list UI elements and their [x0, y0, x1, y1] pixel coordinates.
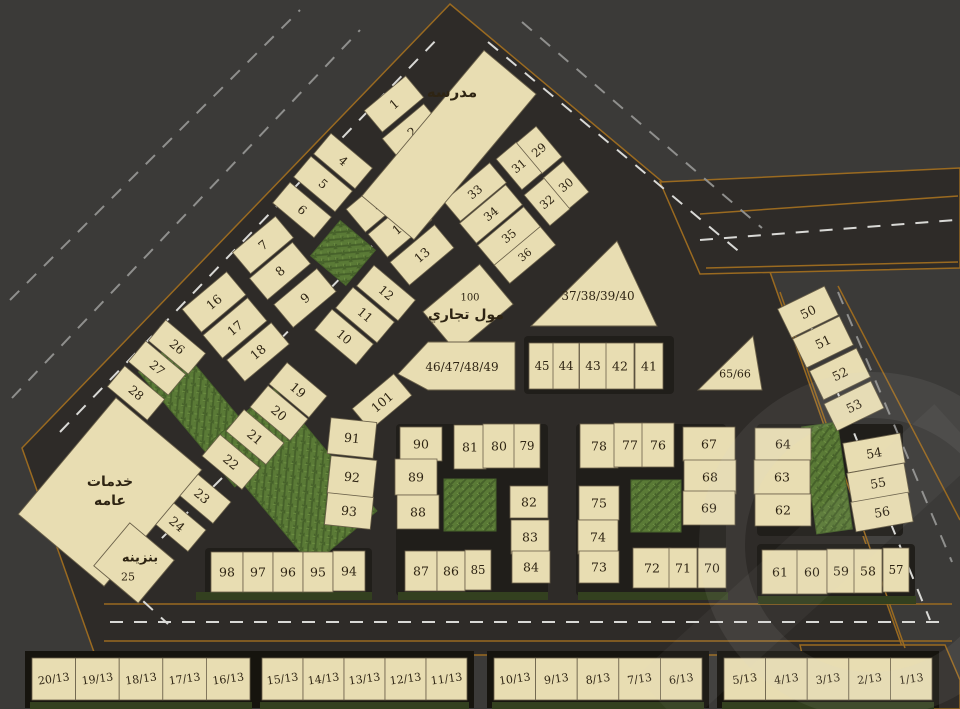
plot-number: 68	[702, 470, 718, 485]
plot-number: 67	[701, 437, 717, 452]
bottom-strip: 15/1314/1313/1312/1311/13	[255, 651, 474, 709]
plot-81[interactable]: 81	[454, 425, 486, 469]
plot-number: 86	[443, 564, 459, 579]
road-surface	[660, 168, 960, 274]
plot-number: 75	[591, 496, 607, 511]
plot-number: 89	[408, 470, 424, 485]
plot-number: 57	[889, 563, 904, 577]
plot-number: 74	[590, 530, 606, 545]
plot-number: 73	[591, 560, 607, 575]
plot-8-13[interactable]: 8/13	[577, 658, 619, 700]
plot-4-13[interactable]: 4/13	[766, 658, 808, 700]
plot-20-13[interactable]: 20/13	[32, 658, 76, 700]
plot-label: 46/47/48/49	[425, 360, 498, 374]
plot-number: 58	[860, 564, 876, 579]
plot-17-13[interactable]: 17/13	[163, 658, 207, 700]
plot-14-13[interactable]: 14/13	[303, 658, 344, 700]
plot-67[interactable]: 67	[683, 427, 735, 461]
plot-18-13[interactable]: 18/13	[119, 658, 163, 700]
plot-42[interactable]: 42	[606, 343, 634, 389]
plot-label: بنزينه	[122, 551, 158, 566]
plot-59[interactable]: 59	[827, 549, 855, 593]
plot-label: 25	[121, 571, 135, 584]
plot-9-13[interactable]: 9/13	[536, 658, 578, 700]
plot-number: 77	[622, 438, 638, 453]
plot-95[interactable]: 95	[303, 552, 333, 592]
hedge-strip	[758, 596, 916, 604]
plot-6-13[interactable]: 6/13	[660, 658, 702, 700]
plot-91[interactable]: 91	[327, 418, 377, 459]
plot-13-13[interactable]: 13/13	[344, 658, 385, 700]
plot-number: 55	[869, 474, 887, 492]
plot-number: 85	[471, 563, 486, 577]
plot-number: 97	[250, 565, 266, 580]
plot-92[interactable]: 92	[327, 456, 377, 499]
plot-number: 92	[343, 469, 360, 486]
plot-88[interactable]: 88	[397, 495, 439, 529]
plot-71[interactable]: 71	[669, 548, 697, 588]
plot-number: 83	[522, 530, 538, 545]
plot-79[interactable]: 79	[514, 424, 540, 468]
plot-97[interactable]: 97	[243, 552, 273, 592]
plot-number: 78	[591, 439, 607, 454]
plot-73[interactable]: 73	[579, 551, 619, 583]
plot-86[interactable]: 86	[437, 551, 465, 591]
plot-label: 100	[460, 293, 479, 304]
plot-7-13[interactable]: 7/13	[619, 658, 661, 700]
plot-83[interactable]: 83	[511, 520, 549, 554]
plot-number: 64	[775, 437, 791, 452]
plot-98[interactable]: 98	[211, 552, 243, 592]
plot-70[interactable]: 70	[698, 548, 726, 588]
plot-number: 84	[523, 560, 539, 575]
plot-number: 71	[675, 561, 691, 576]
plot-63[interactable]: 63	[754, 460, 810, 494]
plot-11-13[interactable]: 11/13	[426, 658, 467, 700]
plot-number: 54	[865, 444, 883, 462]
plot-number: 87	[413, 564, 429, 579]
plot-number: 80	[491, 439, 507, 454]
plot-label: عامه	[94, 493, 126, 509]
plot-number: 62	[775, 503, 791, 518]
plot-number: 79	[520, 439, 535, 453]
site-plan-map: 1232931303233343536456789151413121110161…	[0, 0, 960, 709]
plot-number: 56	[873, 503, 891, 521]
plot-label: 37/38/39/40	[561, 289, 634, 303]
plot-number: 42	[612, 359, 628, 374]
plot-44[interactable]: 44	[553, 343, 579, 389]
plot-number: 94	[341, 564, 357, 579]
plot-1-13[interactable]: 1/13	[890, 658, 932, 700]
plot-2-13[interactable]: 2/13	[849, 658, 891, 700]
site-plan-canvas: 1232931303233343536456789151413121110161…	[0, 0, 960, 709]
plot-12-13[interactable]: 12/13	[385, 658, 426, 700]
plot-61[interactable]: 61	[762, 550, 798, 594]
plot-label: 65/66	[719, 368, 751, 381]
plot-label: مول تجاري	[428, 307, 504, 324]
plot-number: 61	[772, 565, 788, 580]
plot-number: 98	[219, 565, 235, 580]
hedge-strip	[578, 592, 728, 600]
green-area	[631, 480, 681, 532]
plot-68[interactable]: 68	[684, 460, 736, 494]
plot-57[interactable]: 57	[883, 548, 909, 592]
plot-74[interactable]: 74	[578, 520, 618, 554]
plot-60[interactable]: 60	[797, 550, 827, 594]
plot-87[interactable]: 87	[405, 551, 437, 591]
plot-64[interactable]: 64	[755, 428, 811, 460]
plot-number: 82	[521, 495, 537, 510]
plot-77[interactable]: 77	[614, 423, 646, 467]
plot-number: 59	[833, 564, 849, 579]
plot-19-13[interactable]: 19/13	[76, 658, 120, 700]
plot-number: 88	[410, 505, 426, 520]
plot-43[interactable]: 43	[580, 343, 607, 389]
plot-number: 90	[413, 437, 429, 452]
plot-93[interactable]: 93	[324, 493, 373, 530]
plot-number: 43	[585, 359, 600, 373]
plot-label: خدمات	[87, 474, 133, 490]
hedge-strip	[398, 592, 548, 600]
plot-number: 93	[340, 503, 357, 520]
plot-89[interactable]: 89	[395, 459, 437, 495]
plot-75[interactable]: 75	[579, 486, 619, 520]
plot-number: 95	[310, 565, 326, 580]
plot-number: 76	[650, 438, 666, 453]
plot-5-13[interactable]: 5/13	[724, 658, 766, 700]
plot-number: 72	[644, 561, 660, 576]
plot-78[interactable]: 78	[580, 424, 618, 468]
plot-10-13[interactable]: 10/13	[494, 658, 536, 700]
plot-80[interactable]: 80	[483, 424, 515, 468]
plot-16-13[interactable]: 16/13	[206, 658, 250, 700]
plot-number: 41	[641, 359, 657, 374]
plot-15-13[interactable]: 15/13	[262, 658, 303, 700]
plot-number: 45	[535, 359, 550, 373]
plot-number: 91	[343, 430, 360, 447]
plot-94[interactable]: 94	[333, 551, 365, 591]
plot-84[interactable]: 84	[512, 551, 550, 583]
plot-41[interactable]: 41	[635, 343, 663, 389]
plot-number: 60	[804, 565, 820, 580]
plot-number: 70	[704, 561, 720, 576]
plot-90[interactable]: 90	[400, 427, 442, 461]
hedge-strip	[196, 592, 372, 600]
plot-label: مدرسه	[427, 83, 477, 101]
plot-76[interactable]: 76	[642, 423, 674, 467]
plot-72[interactable]: 72	[633, 548, 671, 588]
plot-62[interactable]: 62	[755, 494, 811, 526]
plot-number: 96	[280, 565, 296, 580]
bottom-strip: 20/1319/1318/1317/1316/13	[25, 651, 257, 709]
plot-82[interactable]: 82	[510, 486, 548, 518]
plot-3-13[interactable]: 3/13	[807, 658, 849, 700]
plot-69[interactable]: 69	[683, 491, 735, 525]
plot-number: 44	[559, 359, 574, 373]
bottom-strip: 5/134/133/132/131/13	[717, 651, 939, 709]
plot-number: 69	[701, 501, 717, 516]
plot-96[interactable]: 96	[273, 552, 303, 592]
plot-number: 81	[462, 440, 478, 455]
green-area	[444, 479, 496, 531]
plot-number: 63	[774, 470, 790, 485]
plot-45[interactable]: 45	[529, 343, 555, 389]
bottom-strip: 10/139/138/137/136/13	[487, 651, 709, 709]
plot-58[interactable]: 58	[854, 549, 882, 593]
plot-85[interactable]: 85	[465, 550, 491, 590]
